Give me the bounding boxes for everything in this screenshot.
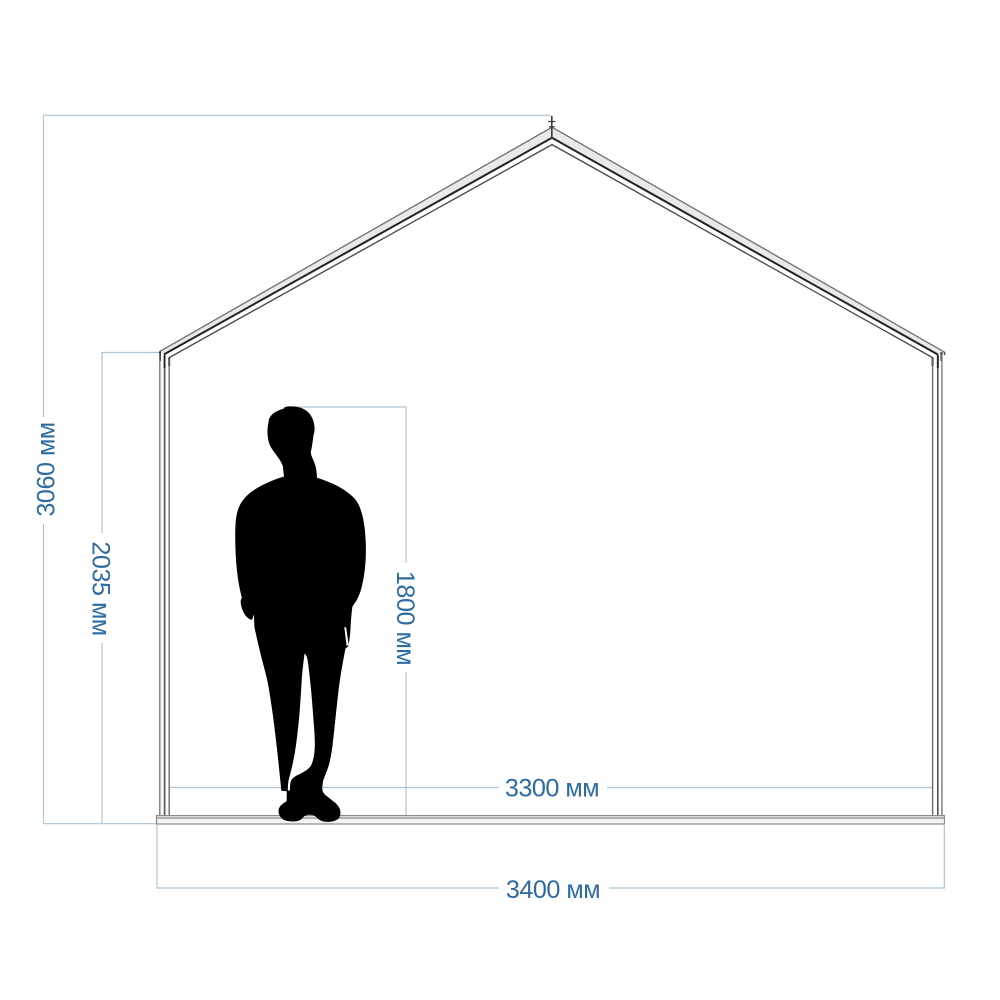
svg-text:3300 мм: 3300 мм (505, 775, 599, 803)
svg-text:2035 мм: 2035 мм (87, 541, 115, 635)
svg-text:1800 мм: 1800 мм (391, 571, 419, 665)
svg-text:3400 мм: 3400 мм (506, 876, 600, 904)
svg-text:3060 мм: 3060 мм (32, 422, 60, 516)
